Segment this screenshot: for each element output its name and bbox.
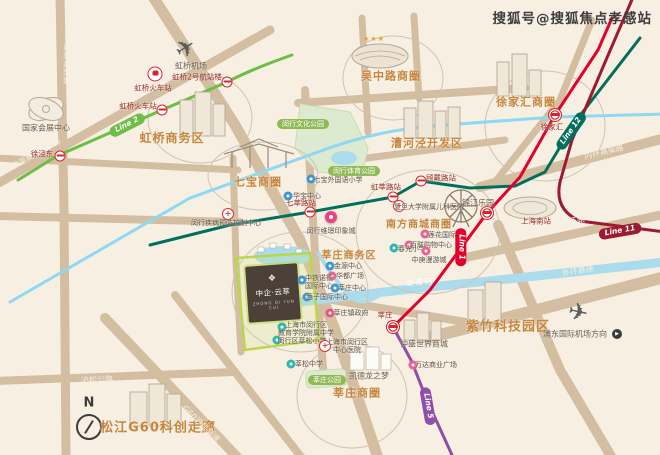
district-label: 莘庄商圈 [333, 388, 381, 401]
metro-line-pill: Line 5 [420, 387, 437, 426]
road-label: 中环路 [560, 215, 585, 228]
road-label: 内环高架路 [583, 143, 624, 161]
district-label: 徐家汇商圈 [496, 97, 556, 110]
airport-label: 浦东国际机场方向 [543, 329, 607, 338]
poi-label: 复旦大学附属儿科医院 [394, 203, 464, 211]
metro-line-pill: Line 1 [456, 228, 467, 266]
metro-line-pill: Line 11 [598, 222, 642, 240]
poi-label: 七宝外国语小学 [314, 176, 363, 184]
district-label: 紫竹科技园区 [466, 321, 550, 336]
district-label: 吴中路商圈 [361, 71, 421, 84]
station-label: 莘庄 [378, 312, 393, 321]
landmark-label: 国家会展中心 [22, 123, 70, 132]
poi-label: 莲花国际 [428, 231, 456, 239]
station-label: 虹桥火车站 [134, 85, 172, 94]
train-glyph [152, 70, 158, 75]
compass-n-label: N [84, 397, 95, 412]
project-name: 中企·云萃 [247, 285, 300, 300]
landmark-label: 锦江乐园 [462, 198, 494, 207]
mall-pin-icon [325, 211, 337, 223]
metro-station-marker [55, 151, 66, 162]
park-label: 闵行文化公园 [277, 119, 329, 129]
stadium-stars-decoration: ★★★ [363, 35, 385, 43]
road-label: 外环高速 [561, 263, 594, 278]
metro-station-marker [386, 320, 400, 334]
project-name-latin: ZHONG QI YUN CUI [248, 298, 301, 312]
poi-label: 莘庄镇政府 [334, 309, 369, 317]
station-label: 徐泾东 [31, 151, 54, 160]
district-label: 虹桥商务区 [139, 132, 204, 146]
poi-label: 中铁诺德 国际中心 [305, 274, 333, 290]
district-label: 七宝商圈 [234, 177, 282, 190]
poi-label: 金源中心 [334, 262, 362, 270]
poi-label: 中庚漫游城 [412, 256, 447, 264]
park-label: 莘庄公园 [308, 375, 346, 385]
poi-label: 上海市闵行区 教育学院附属中学 [278, 321, 334, 337]
station-label: 虹桥火车站 [119, 103, 157, 112]
river-label: 淀浦河 [405, 278, 434, 289]
district-label: 莘庄商务区 [322, 250, 377, 262]
metro-station-marker [416, 176, 427, 187]
metro-station-marker [480, 206, 494, 220]
poi-label: 华都广场 [336, 272, 364, 280]
poi-office-icon [284, 192, 293, 201]
poi-label: 华宝中心 [293, 192, 321, 200]
railway-station-icon [148, 67, 163, 82]
station-label: 徐家汇 [541, 124, 564, 133]
real-estate-location-map: ❖ 中企·云萃 ZHONG QI YUN CUI N 搜狐号@搜狐焦点孝感站 吴… [0, 0, 660, 455]
station-label: 虹莘路站 [371, 184, 401, 193]
district-label: 漕河泾开发区 [391, 138, 463, 151]
airplane-icon: ✈ [565, 297, 590, 328]
watermark: 搜狐号@搜狐焦点孝感站 [493, 7, 653, 27]
direction-arrow-icon: ▶ [612, 329, 622, 339]
road-label: 嘉闵高架路 [62, 43, 71, 86]
landmark-label: 凯德龙之梦 [349, 371, 389, 380]
metro-station-marker [222, 77, 233, 88]
project-logo-icon: ❖ [246, 272, 299, 286]
station-label: 虹桥2号航站楼 [172, 74, 222, 83]
poi-mall-icon [422, 247, 431, 256]
compass-icon [76, 414, 102, 440]
metro-station-marker [548, 108, 562, 122]
station-label: 七莘路站 [286, 200, 316, 209]
station-label: 上海南站 [521, 218, 551, 227]
station-label: 顾戴路站 [426, 175, 456, 184]
landmark-label: 仲盛世界商城 [400, 339, 448, 348]
labels-overlay: ❖ 中企·云萃 ZHONG QI YUN CUI N 搜狐号@搜狐焦点孝感站 吴… [0, 0, 660, 455]
district-label: 南方商城商圈 [386, 219, 452, 231]
poi-label: 莘庄中心 [338, 284, 366, 292]
airport-label: 虹桥机场 [175, 61, 207, 70]
poi-label: 闵行维璟印象城 [307, 227, 356, 235]
poi-label: 万达商业广场 [415, 361, 457, 369]
road-label: 沪松公路 [81, 375, 113, 385]
poi-label: 莘松中学 [295, 360, 323, 368]
park-label: 闵行体育公园 [328, 166, 380, 176]
metro-station-marker [157, 105, 168, 116]
poi-label: 上海市闵行区 中心医院 [326, 338, 368, 354]
poi-label: 闵行疾病预防控制中心 [191, 219, 261, 227]
poi-label: 西子国际中心 [306, 293, 348, 301]
project-building: ❖ 中企·云萃 ZHONG QI YUN CUI [245, 263, 301, 322]
